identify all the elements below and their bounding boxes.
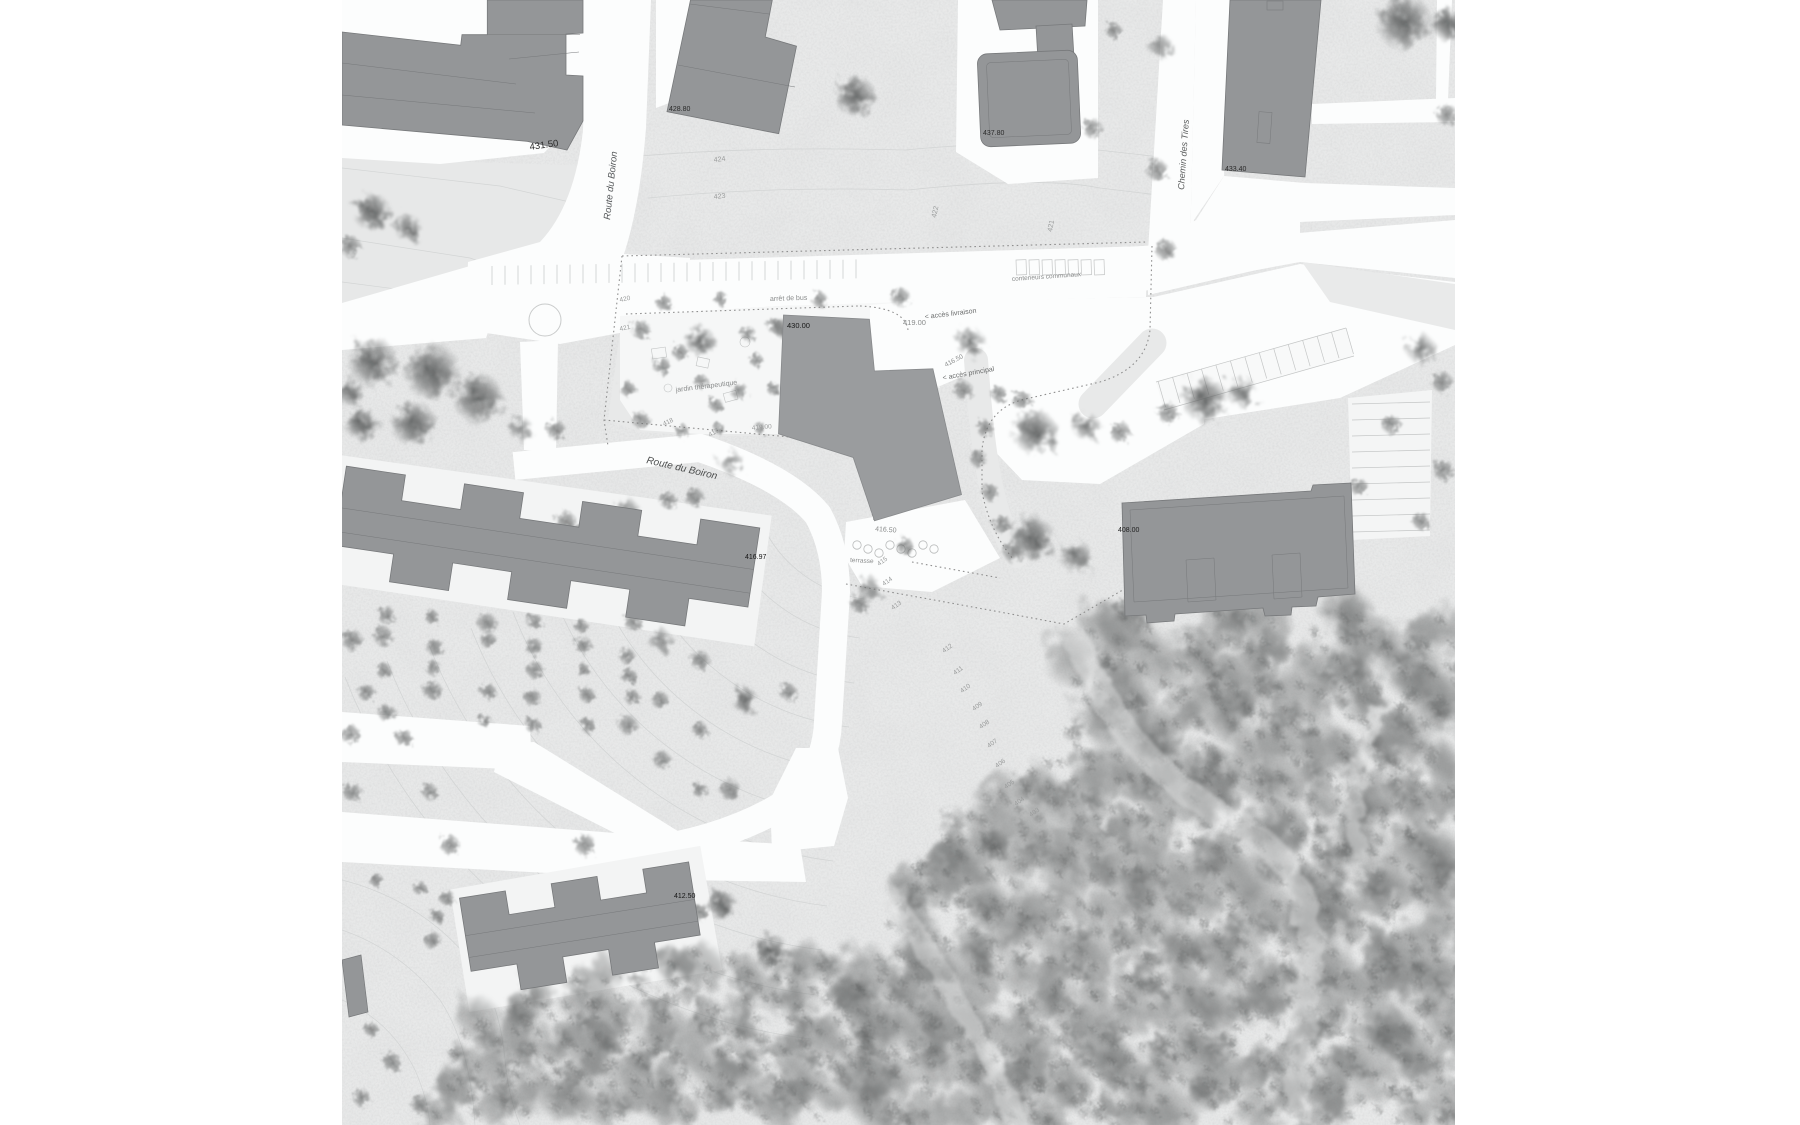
svg-text:416.97: 416.97 — [745, 554, 767, 561]
svg-text:424: 424 — [713, 156, 725, 164]
svg-text:437.80: 437.80 — [983, 130, 1005, 137]
svg-text:423: 423 — [713, 193, 725, 201]
svg-text:terrasse: terrasse — [850, 557, 874, 565]
svg-text:408.00: 408.00 — [1118, 527, 1140, 534]
svg-text:416.50: 416.50 — [875, 526, 897, 534]
svg-text:433.40: 433.40 — [1225, 166, 1247, 173]
svg-text:arrêt de bus: arrêt de bus — [770, 295, 808, 303]
svg-text:419.00: 419.00 — [903, 318, 926, 327]
svg-text:428.80: 428.80 — [669, 106, 691, 113]
svg-text:430.00: 430.00 — [787, 321, 810, 330]
svg-text:412.50: 412.50 — [674, 893, 696, 900]
